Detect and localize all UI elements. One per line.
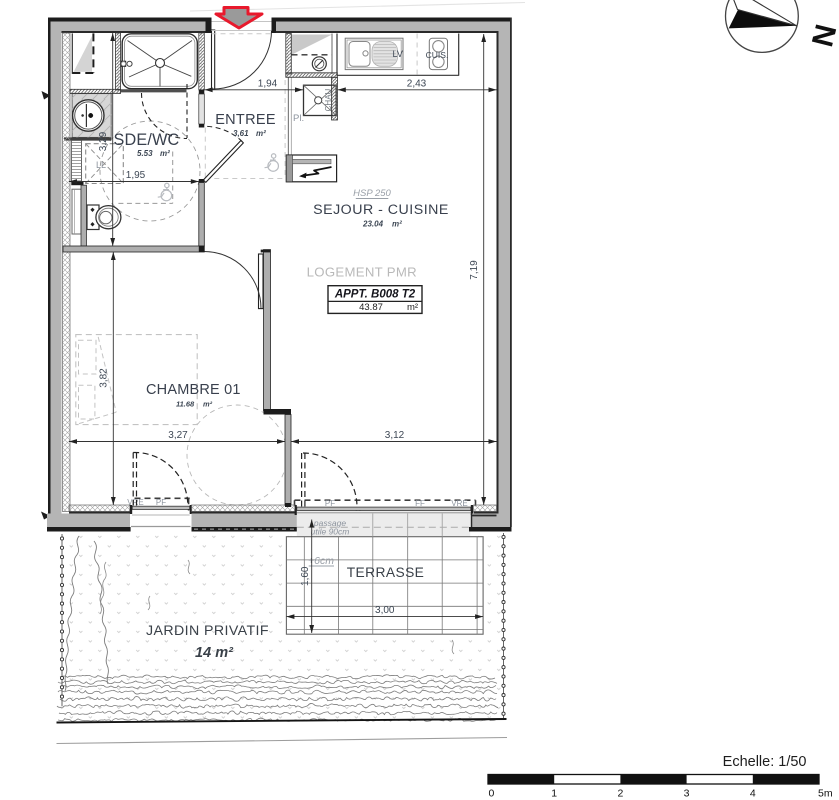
svg-text:CHAMBRE 01: CHAMBRE 01 bbox=[146, 382, 241, 398]
svg-text:LL: LL bbox=[96, 160, 106, 170]
svg-text:m²: m² bbox=[256, 129, 266, 138]
svg-text:m²: m² bbox=[160, 149, 170, 158]
svg-text:SDE/WC: SDE/WC bbox=[114, 131, 180, 149]
svg-text:3,00: 3,00 bbox=[375, 605, 395, 616]
svg-text:3,12: 3,12 bbox=[385, 430, 405, 441]
svg-text:1,95: 1,95 bbox=[126, 170, 146, 181]
svg-text:4: 4 bbox=[750, 788, 756, 800]
svg-text:PF: PF bbox=[156, 498, 166, 507]
svg-text:2,43: 2,43 bbox=[407, 79, 427, 90]
svg-text:m²: m² bbox=[392, 220, 402, 229]
svg-text:ENTREE: ENTREE bbox=[215, 112, 276, 128]
svg-text:1: 1 bbox=[551, 788, 557, 800]
svg-text:JARDIN PRIVATIF: JARDIN PRIVATIF bbox=[146, 623, 269, 639]
svg-text:3,82: 3,82 bbox=[99, 368, 110, 388]
svg-text:CUIS.: CUIS. bbox=[426, 50, 449, 60]
svg-text:CHAU: CHAU bbox=[324, 88, 333, 111]
svg-text:m²: m² bbox=[203, 400, 213, 409]
svg-text:VRE: VRE bbox=[451, 499, 467, 508]
svg-text:5.53: 5.53 bbox=[137, 149, 153, 158]
svg-text:PF: PF bbox=[325, 499, 335, 508]
svg-text:Echelle: 1/50: Echelle: 1/50 bbox=[723, 754, 807, 770]
svg-text:1,94: 1,94 bbox=[258, 79, 278, 90]
svg-text:SEJOUR - CUISINE: SEJOUR - CUISINE bbox=[313, 202, 449, 218]
svg-text:3,29: 3,29 bbox=[98, 131, 109, 151]
svg-text:utile 90cm: utile 90cm bbox=[311, 527, 350, 537]
svg-text:LOGEMENT PMR: LOGEMENT PMR bbox=[307, 265, 417, 280]
svg-text:5m: 5m bbox=[818, 788, 833, 800]
svg-text:m²: m² bbox=[407, 302, 418, 313]
svg-text:3,27: 3,27 bbox=[168, 430, 188, 441]
svg-text:3: 3 bbox=[684, 788, 690, 800]
svg-text:LV: LV bbox=[393, 49, 403, 59]
svg-text:Pl.: Pl. bbox=[293, 113, 304, 124]
svg-text:2: 2 bbox=[617, 788, 623, 800]
svg-text:0: 0 bbox=[489, 788, 495, 800]
svg-text:14 m²: 14 m² bbox=[195, 645, 234, 661]
svg-text:TERRASSE: TERRASSE bbox=[347, 565, 425, 580]
svg-text:43.87: 43.87 bbox=[359, 302, 383, 313]
svg-text:11.68: 11.68 bbox=[176, 400, 195, 409]
svg-text:HSP 250: HSP 250 bbox=[353, 188, 391, 199]
svg-text:1,60: 1,60 bbox=[300, 566, 311, 586]
svg-text:3,61: 3,61 bbox=[233, 129, 249, 138]
svg-text:7,19: 7,19 bbox=[469, 260, 480, 280]
svg-text:23.04: 23.04 bbox=[362, 220, 384, 229]
svg-text:FF: FF bbox=[415, 499, 425, 508]
svg-text:APPT. B008 T2: APPT. B008 T2 bbox=[334, 289, 416, 301]
